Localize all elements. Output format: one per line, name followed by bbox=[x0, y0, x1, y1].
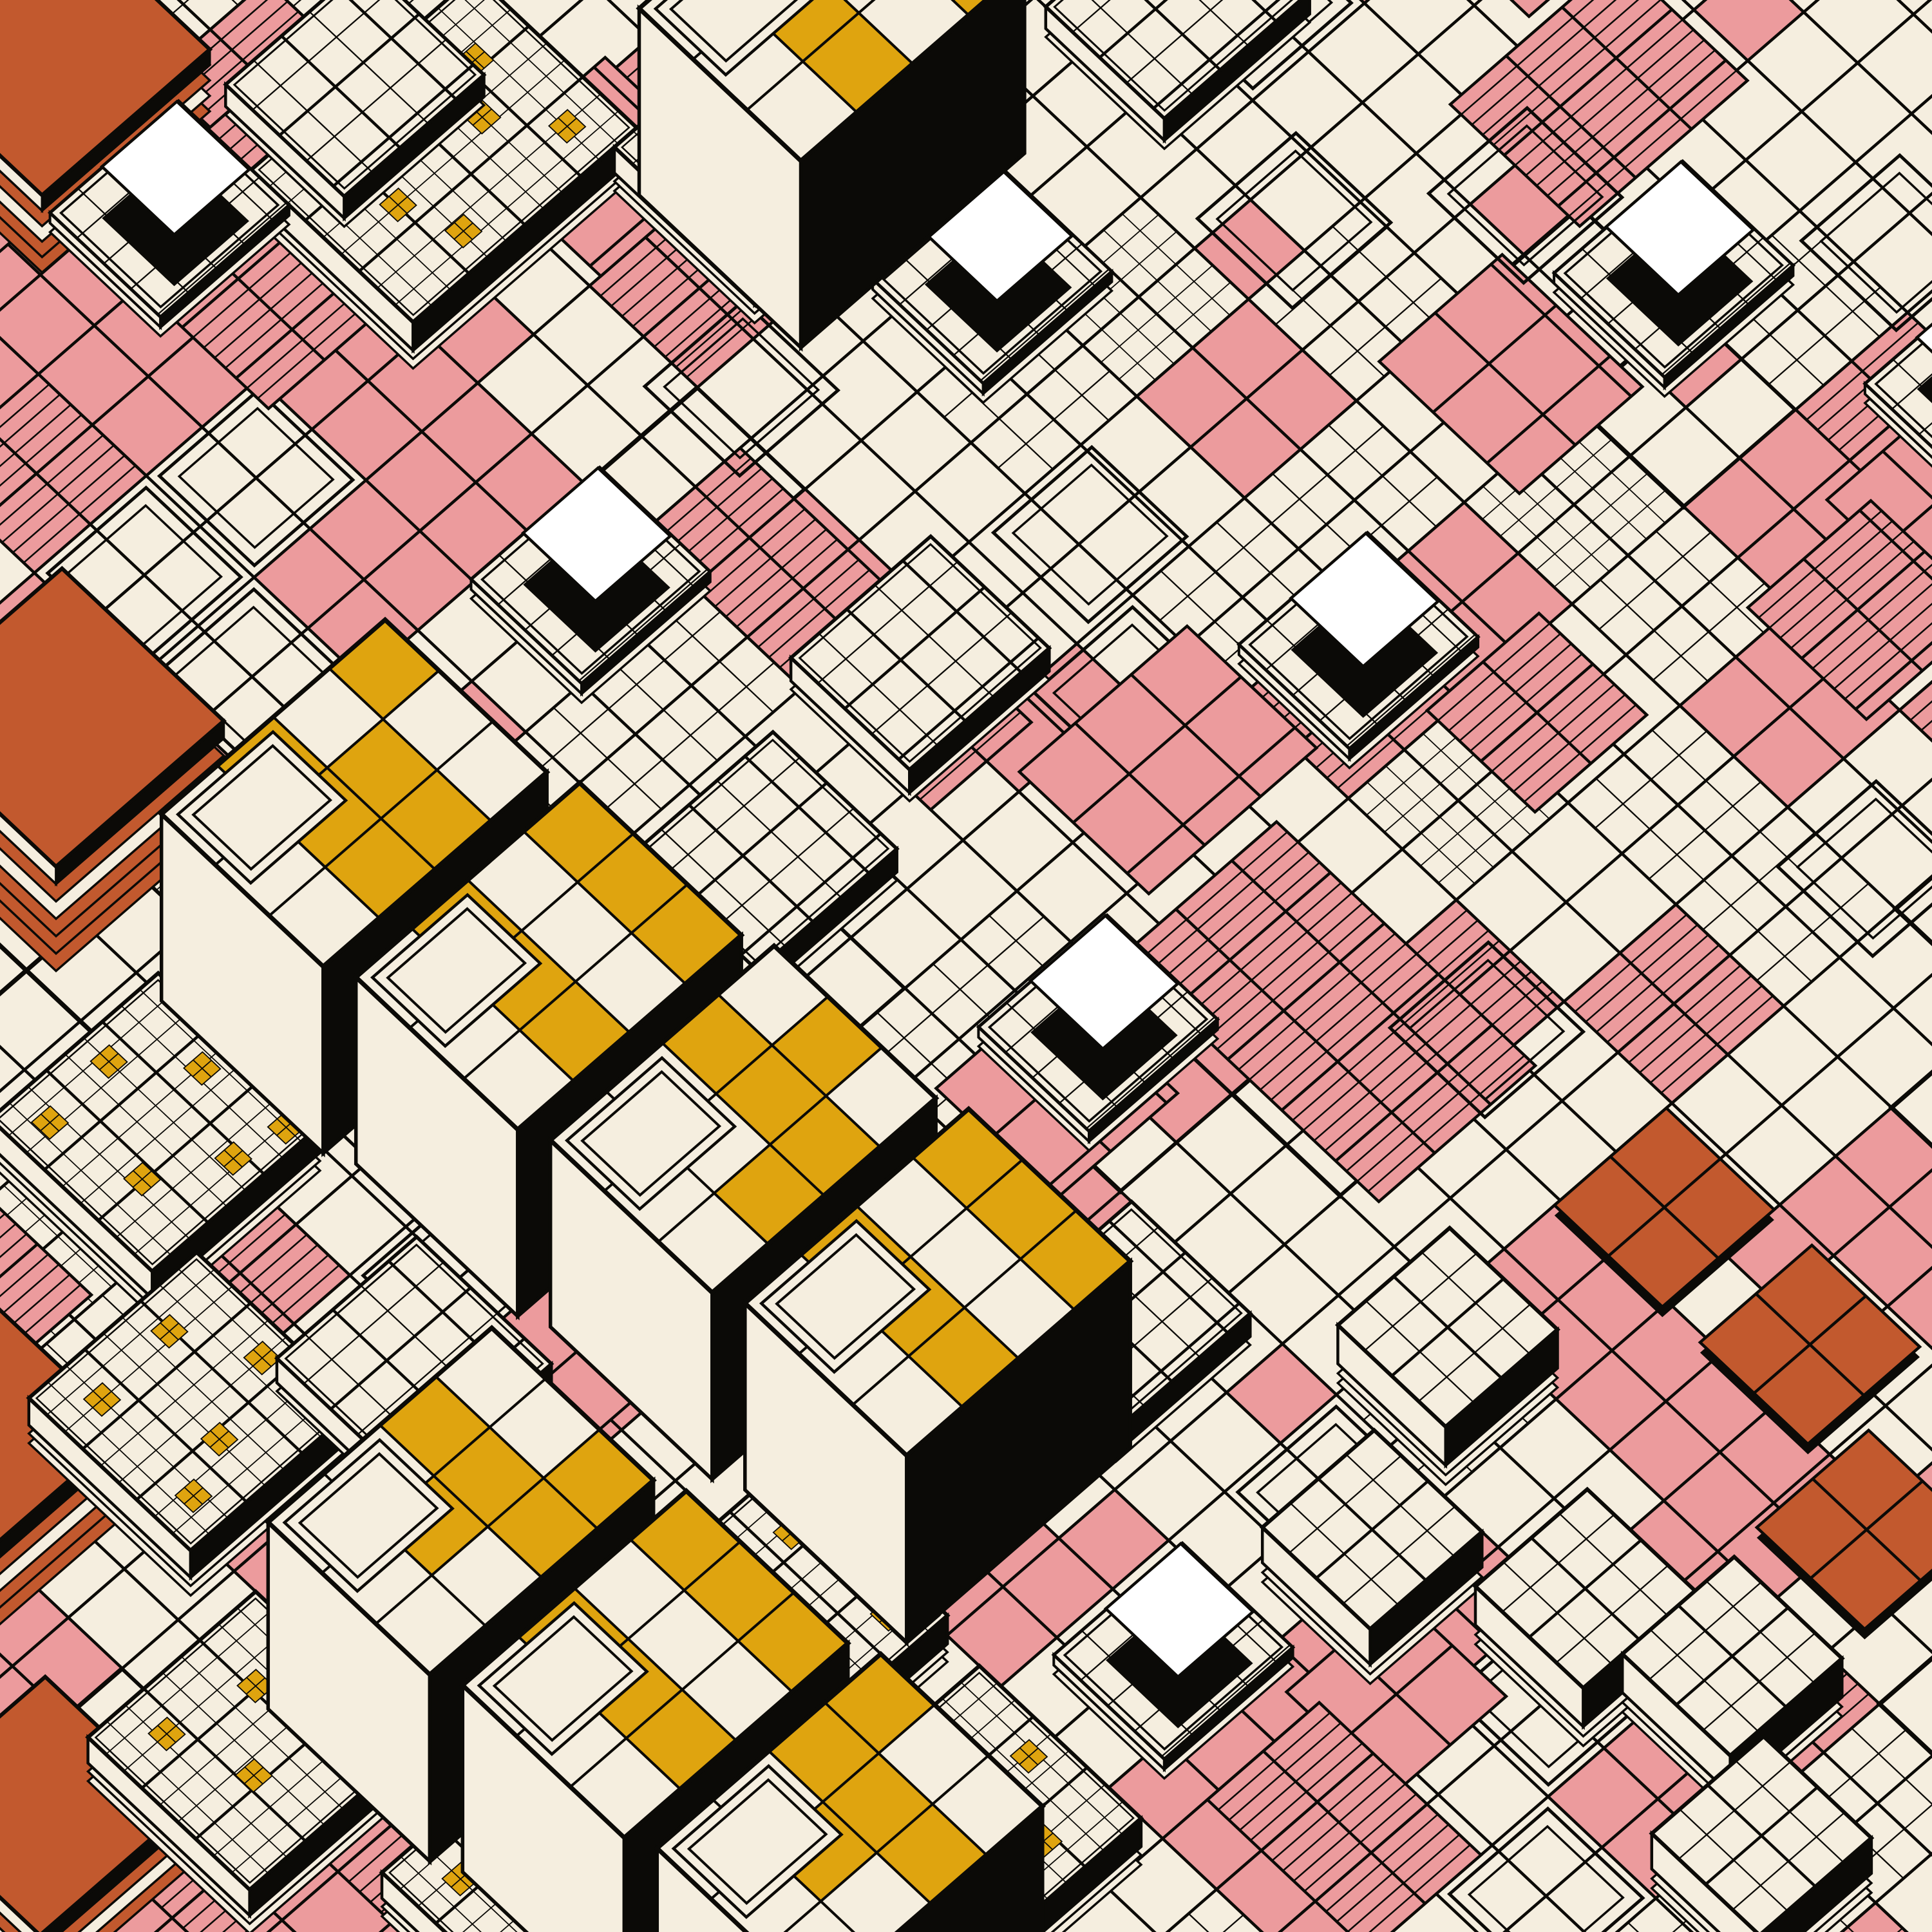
artwork-frame bbox=[0, 0, 1932, 1932]
isometric-pattern-canvas bbox=[0, 0, 1932, 1932]
